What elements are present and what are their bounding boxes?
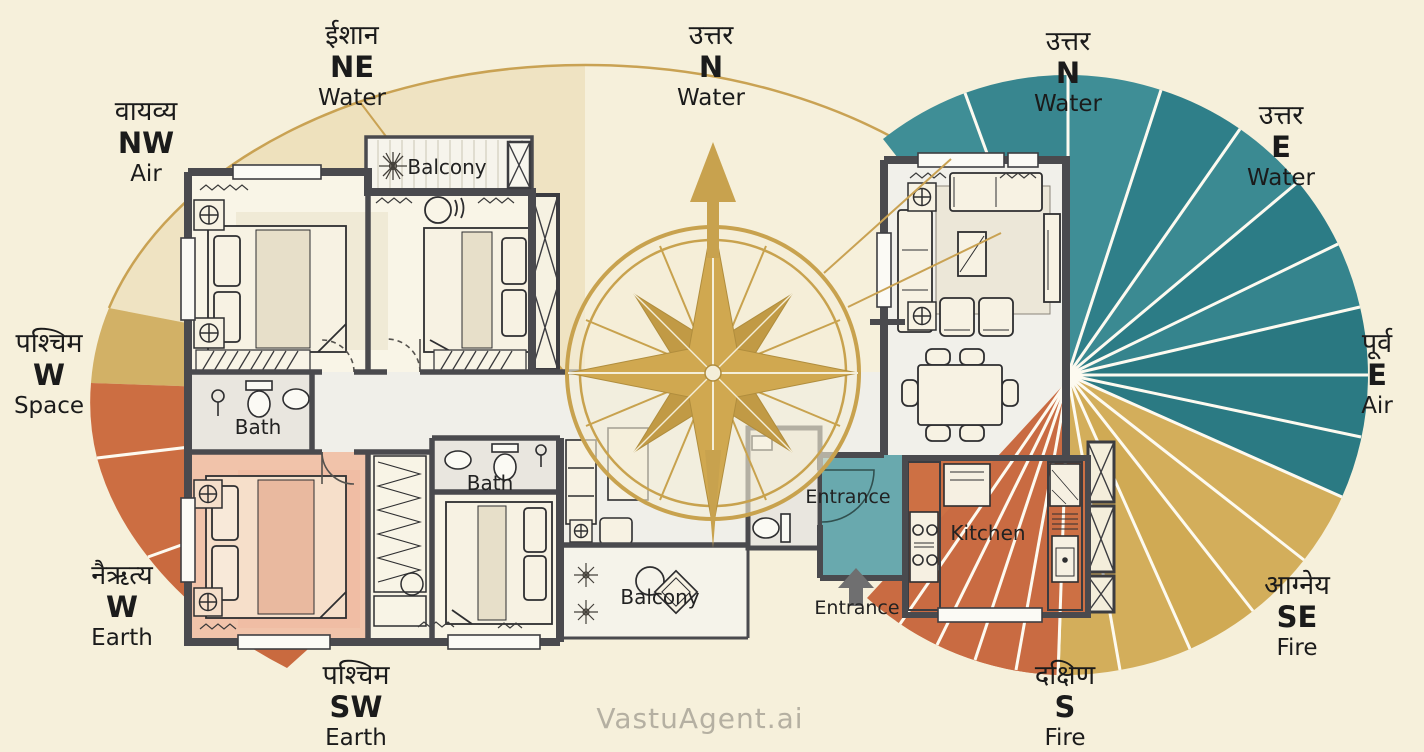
direction-element: Water [318,85,386,112]
direction-element: Air [1361,393,1393,420]
room-label-kitchen: Kitchen [950,521,1025,545]
direction-code: S [1035,691,1095,725]
direction-label-w-left: पश्चिम W Space [14,328,84,420]
direction-code: SE [1264,601,1330,635]
direction-element: Air [115,161,178,188]
direction-code: NE [318,51,386,85]
direction-label-e-top: उत्तर E Water [1247,100,1315,192]
direction-hindi: उत्तर [1034,26,1102,57]
direction-element: Water [1034,91,1102,118]
direction-label-sw-bottom: पश्चिम SW Earth [322,660,389,752]
direction-element: Fire [1035,725,1095,752]
direction-hindi: उत्तर [677,20,745,51]
direction-code: N [1034,57,1102,91]
direction-label-s: दक्षिण S Fire [1035,660,1095,752]
direction-label-sw-left: नैऋत्य W Earth [91,560,153,652]
direction-hindi: ईशान [318,20,386,51]
floorplan-graphic [0,0,1424,752]
direction-hindi: पश्चिम [322,660,389,691]
direction-hindi: पूर्व [1361,328,1393,359]
direction-label-nw: वायव्य NW Air [115,96,178,188]
direction-code: E [1361,359,1393,393]
direction-label-ne: ईशान NE Water [318,20,386,112]
direction-hindi: पश्चिम [14,328,84,359]
direction-code: E [1247,131,1315,165]
room-label-entrance-outer: Entrance [814,597,899,619]
direction-hindi: नैऋत्य [91,560,153,591]
direction-hindi: दक्षिण [1035,660,1095,691]
plant-icon [379,152,407,180]
direction-element: Earth [322,725,389,752]
direction-label-e-right: पूर्व E Air [1361,328,1393,420]
direction-label-n-right: उत्तर N Water [1034,26,1102,118]
direction-label-se: आग्नेय SE Fire [1264,570,1330,662]
direction-element: Water [677,85,745,112]
direction-hindi: आग्नेय [1264,570,1330,601]
direction-code: W [91,591,153,625]
room-label-bath-left: Bath [235,415,282,439]
vastu-infographic: वायव्य NW Air ईशान NE Water उत्तर N Wate… [0,0,1424,752]
room-label-bath-middle: Bath [467,471,514,495]
room-label-balcony-top: Balcony [407,155,486,179]
direction-label-n-center: उत्तर N Water [677,20,745,112]
watermark: VastuAgent.ai [596,702,803,735]
direction-code: N [677,51,745,85]
direction-code: SW [322,691,389,725]
direction-hindi: वायव्य [115,96,178,127]
direction-hindi: उत्तर [1247,100,1315,131]
fan-icon [570,520,592,542]
direction-element: Fire [1264,635,1330,662]
direction-element: Water [1247,165,1315,192]
room-label-entrance-inner: Entrance [805,486,890,508]
entrance-highlight [822,455,905,578]
room-label-balcony-bottom: Balcony [620,585,699,609]
direction-code: W [14,359,84,393]
direction-code: NW [115,127,178,161]
direction-element: Space [14,393,84,420]
direction-element: Earth [91,625,153,652]
